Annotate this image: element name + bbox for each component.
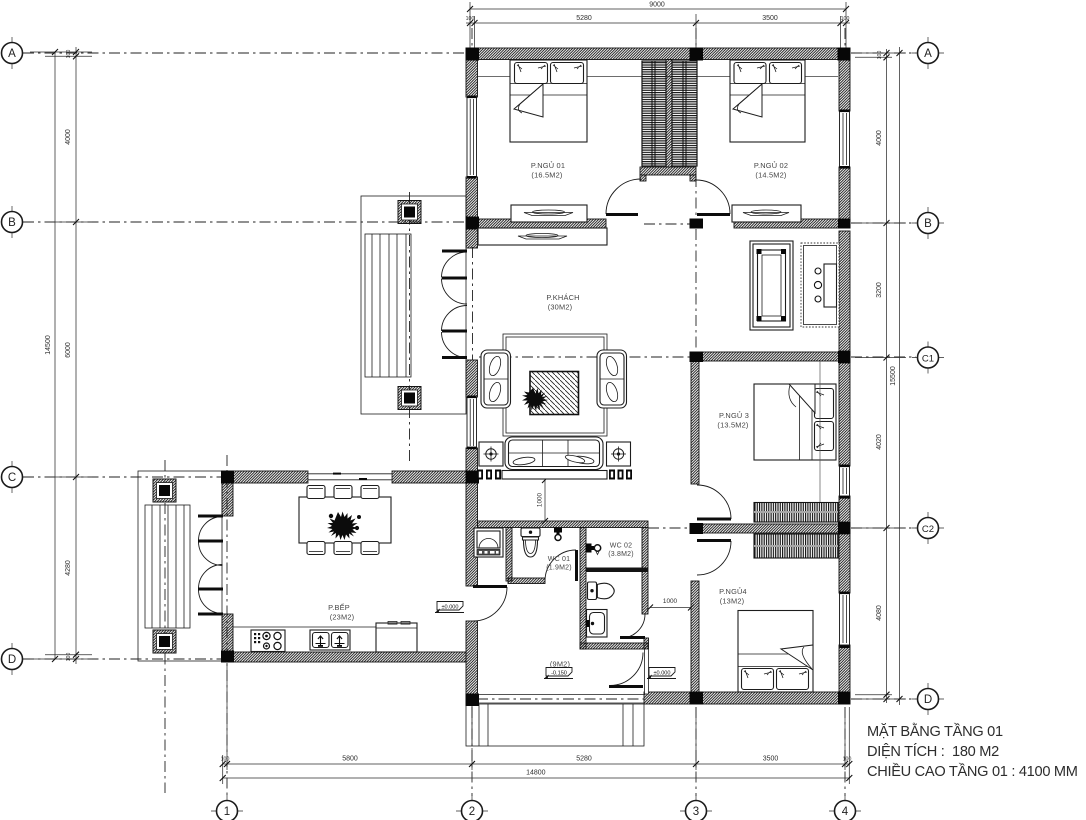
svg-text:1000: 1000	[663, 598, 678, 605]
svg-text:4020: 4020	[876, 434, 883, 450]
svg-text:2: 2	[469, 806, 475, 818]
svg-text:9000: 9000	[649, 2, 665, 9]
svg-text:100: 100	[877, 51, 883, 60]
svg-text:5280: 5280	[576, 15, 592, 22]
svg-text:1: 1	[224, 806, 230, 818]
svg-text:(23M2): (23M2)	[330, 613, 355, 622]
svg-text:1000: 1000	[537, 492, 544, 507]
svg-text:100: 100	[66, 653, 72, 662]
svg-text:(16.5M2): (16.5M2)	[531, 171, 562, 180]
svg-text:4: 4	[842, 806, 849, 818]
svg-text:-0.150: -0.150	[551, 670, 567, 676]
svg-text:B: B	[8, 217, 16, 229]
svg-text:(14.5M2): (14.5M2)	[755, 171, 786, 180]
svg-text:4000: 4000	[876, 130, 883, 146]
svg-text:CHIỀU CAO TẦNG 01 : 4100 MM: CHIỀU CAO TẦNG 01 : 4100 MM	[867, 763, 1078, 780]
svg-text:100: 100	[466, 16, 475, 22]
svg-text:P.NGỦ 02: P.NGỦ 02	[754, 161, 788, 170]
svg-text:P.NGỦ 01: P.NGỦ 01	[531, 161, 565, 170]
svg-text:±0.000: ±0.000	[653, 670, 670, 676]
svg-text:4280: 4280	[65, 560, 72, 576]
svg-text:P.NGỦ 3: P.NGỦ 3	[719, 411, 749, 420]
svg-text:(30M2): (30M2)	[548, 303, 573, 312]
svg-text:(1.9M2): (1.9M2)	[546, 565, 572, 572]
svg-text:MẶT BẰNG TẦNG 01: MẶT BẰNG TẦNG 01	[867, 722, 1003, 740]
svg-text:DIỆN TÍCH : 180 M2: DIỆN TÍCH : 180 M2	[867, 743, 999, 760]
svg-text:(13.5M2): (13.5M2)	[717, 421, 748, 430]
svg-text:C1: C1	[922, 354, 934, 365]
svg-text:WC 01: WC 01	[548, 556, 570, 563]
svg-text:WC 02: WC 02	[610, 543, 632, 550]
svg-text:100: 100	[66, 50, 72, 59]
svg-text:D: D	[8, 654, 16, 666]
svg-text:±0.000: ±0.000	[441, 604, 458, 610]
svg-text:6000: 6000	[65, 342, 72, 358]
svg-text:5280: 5280	[576, 756, 592, 763]
svg-text:(13M2): (13M2)	[720, 597, 745, 606]
svg-text:3: 3	[693, 806, 699, 818]
svg-text:P.NGỦ4: P.NGỦ4	[719, 587, 747, 596]
svg-text:C2: C2	[922, 524, 934, 535]
svg-text:4000: 4000	[65, 129, 72, 145]
svg-text:3500: 3500	[763, 756, 779, 763]
svg-text:4080: 4080	[876, 605, 883, 621]
svg-text:(3.8M2): (3.8M2)	[608, 551, 634, 558]
svg-text:A: A	[8, 48, 16, 60]
svg-text:A: A	[924, 48, 932, 60]
svg-text:C: C	[8, 472, 16, 484]
svg-text:3500: 3500	[762, 15, 778, 22]
svg-text:(9M2): (9M2)	[550, 660, 570, 669]
svg-text:D: D	[924, 694, 932, 706]
svg-text:14500: 14500	[45, 335, 52, 355]
svg-text:14800: 14800	[526, 770, 546, 777]
svg-text:15500: 15500	[890, 366, 897, 386]
svg-text:5800: 5800	[342, 756, 358, 763]
svg-text:3200: 3200	[876, 282, 883, 298]
svg-text:P.KHÁCH: P.KHÁCH	[546, 293, 579, 302]
svg-text:100: 100	[221, 757, 230, 763]
svg-text:P.BẾP: P.BẾP	[328, 602, 350, 612]
svg-text:100: 100	[841, 16, 850, 22]
svg-text:100: 100	[843, 757, 852, 763]
svg-text:B: B	[924, 218, 932, 230]
